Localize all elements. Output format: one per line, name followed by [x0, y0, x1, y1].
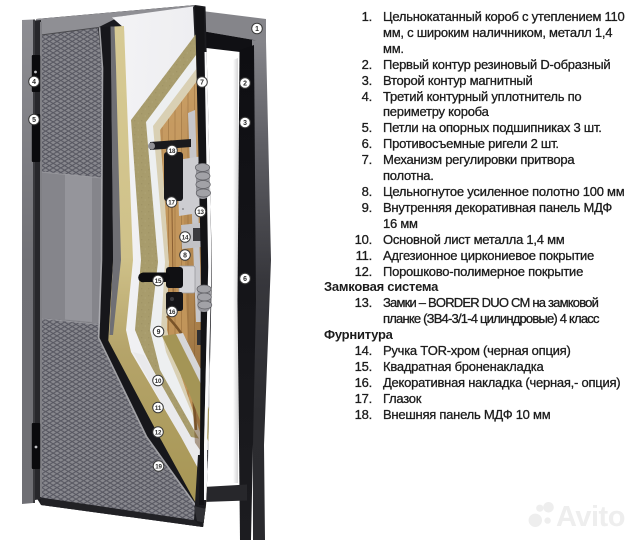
svg-text:6: 6	[243, 276, 247, 283]
svg-text:14: 14	[182, 234, 189, 241]
svg-text:1: 1	[255, 26, 259, 33]
svg-text:10: 10	[155, 378, 162, 385]
svg-text:7: 7	[200, 79, 204, 86]
svg-text:17: 17	[168, 199, 175, 206]
svg-text:8: 8	[183, 252, 187, 259]
svg-text:15: 15	[155, 278, 162, 285]
svg-text:5: 5	[32, 117, 36, 124]
svg-text:Avito: Avito	[556, 501, 625, 533]
svg-text:11: 11	[155, 405, 162, 412]
svg-text:2: 2	[243, 80, 247, 87]
svg-text:12: 12	[155, 429, 162, 436]
svg-text:4: 4	[32, 79, 36, 86]
svg-text:9: 9	[157, 329, 161, 336]
svg-text:3: 3	[243, 120, 247, 127]
svg-text:13: 13	[197, 209, 204, 216]
svg-text:16: 16	[169, 309, 176, 316]
svg-text:19: 19	[155, 463, 162, 470]
svg-text:18: 18	[169, 148, 176, 155]
